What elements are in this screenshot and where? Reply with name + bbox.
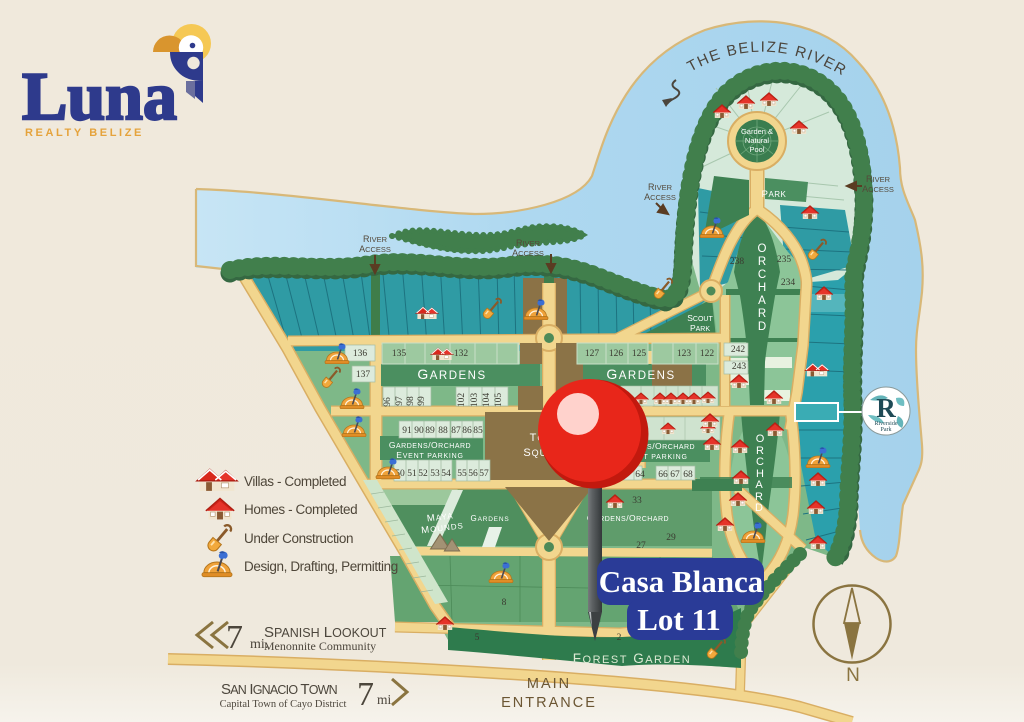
svg-text:243: 243 [732, 362, 747, 372]
svg-text:123: 123 [677, 349, 692, 359]
svg-text:52: 52 [418, 469, 428, 479]
svg-text:D: D [755, 502, 763, 514]
svg-text:Design, Drafting, Permitting: Design, Drafting, Permitting [244, 559, 398, 574]
svg-text:ACCESS: ACCESS [512, 248, 544, 258]
svg-text:RIVER: RIVER [866, 174, 891, 184]
svg-text:29: 29 [666, 533, 676, 543]
svg-text:Casa Blanca: Casa Blanca [599, 564, 764, 599]
svg-text:51: 51 [407, 469, 417, 479]
svg-text:Lot 11: Lot 11 [637, 602, 721, 637]
svg-text:2: 2 [617, 633, 622, 643]
svg-text:A: A [758, 295, 766, 307]
svg-text:98: 98 [406, 396, 416, 406]
svg-text:REALTY BELIZE: REALTY BELIZE [25, 127, 144, 139]
svg-text:D: D [758, 321, 766, 333]
svg-text:105: 105 [494, 393, 504, 408]
svg-text:Villas - Completed: Villas - Completed [244, 474, 346, 489]
svg-text:N: N [846, 665, 860, 686]
svg-text:7: 7 [226, 619, 243, 656]
svg-text:Pool: Pool [749, 145, 764, 154]
svg-text:137: 137 [356, 370, 371, 380]
svg-text:103: 103 [470, 393, 480, 408]
svg-text:RIVER: RIVER [516, 238, 541, 248]
svg-text:7: 7 [357, 676, 374, 713]
svg-text:56: 56 [468, 469, 478, 479]
svg-text:Luna: Luna [22, 58, 177, 134]
svg-text:132: 132 [454, 349, 469, 359]
svg-text:A: A [755, 479, 763, 491]
svg-text:104: 104 [482, 393, 492, 408]
svg-text:ACCESS: ACCESS [644, 192, 676, 202]
svg-text:91: 91 [402, 426, 412, 436]
svg-text:Under Construction: Under Construction [244, 531, 353, 546]
svg-text:97: 97 [395, 396, 405, 406]
svg-text:ENTRANCE: ENTRANCE [501, 695, 597, 711]
svg-text:Natural: Natural [745, 136, 770, 145]
svg-text:Menonnite Community: Menonnite Community [264, 639, 376, 653]
svg-text:ACCESS: ACCESS [862, 184, 894, 194]
svg-text:86: 86 [462, 426, 472, 436]
svg-text:R: R [876, 393, 896, 423]
svg-text:Homes - Completed: Homes - Completed [244, 502, 357, 517]
svg-text:99: 99 [417, 396, 427, 406]
svg-text:R: R [758, 256, 766, 268]
svg-text:H: H [758, 282, 766, 294]
svg-text:27: 27 [636, 541, 646, 551]
svg-text:235: 235 [777, 255, 792, 265]
svg-text:68: 68 [683, 470, 693, 480]
svg-text:122: 122 [700, 349, 715, 359]
svg-text:242: 242 [731, 345, 746, 355]
svg-text:R: R [758, 308, 766, 320]
svg-text:136: 136 [353, 349, 368, 359]
svg-text:135: 135 [392, 349, 407, 359]
svg-text:96: 96 [383, 397, 393, 407]
svg-text:67: 67 [670, 470, 680, 480]
svg-text:Capital Town of Cayo District: Capital Town of Cayo District [220, 699, 347, 710]
svg-text:234: 234 [781, 278, 796, 288]
svg-text:MAIN: MAIN [527, 676, 571, 692]
svg-text:87: 87 [451, 426, 461, 436]
svg-text:O: O [758, 243, 767, 255]
svg-text:127: 127 [585, 349, 600, 359]
svg-text:SAN IGNACIO TOWN: SAN IGNACIO TOWN [221, 681, 338, 698]
svg-text:Garden &: Garden & [741, 127, 773, 136]
svg-text:8: 8 [502, 598, 507, 608]
svg-text:85: 85 [473, 426, 483, 436]
svg-text:126: 126 [609, 349, 624, 359]
svg-text:89: 89 [425, 426, 435, 436]
svg-text:54: 54 [441, 469, 451, 479]
svg-text:5: 5 [475, 633, 480, 643]
svg-text:53: 53 [430, 469, 440, 479]
svg-text:88: 88 [438, 426, 448, 436]
svg-text:PARK: PARK [762, 189, 787, 200]
svg-text:C: C [756, 456, 764, 468]
svg-text:Park: Park [881, 427, 892, 433]
svg-text:33: 33 [632, 496, 642, 506]
svg-text:FOREST GARDEN: FOREST GARDEN [573, 651, 691, 666]
svg-text:57: 57 [479, 469, 489, 479]
svg-text:90: 90 [414, 426, 424, 436]
svg-text:ACCESS: ACCESS [359, 244, 391, 254]
svg-text:102: 102 [457, 393, 467, 408]
svg-text:55: 55 [457, 469, 467, 479]
svg-text:64: 64 [635, 470, 645, 480]
svg-text:O: O [756, 433, 765, 445]
svg-text:GARDENS: GARDENS [471, 514, 510, 523]
svg-text:RIVER: RIVER [363, 234, 388, 244]
svg-text:238: 238 [730, 257, 745, 267]
svg-text:RIVER: RIVER [648, 182, 673, 192]
svg-text:C: C [758, 269, 766, 281]
svg-text:125: 125 [632, 349, 647, 359]
svg-text:66: 66 [658, 470, 668, 480]
